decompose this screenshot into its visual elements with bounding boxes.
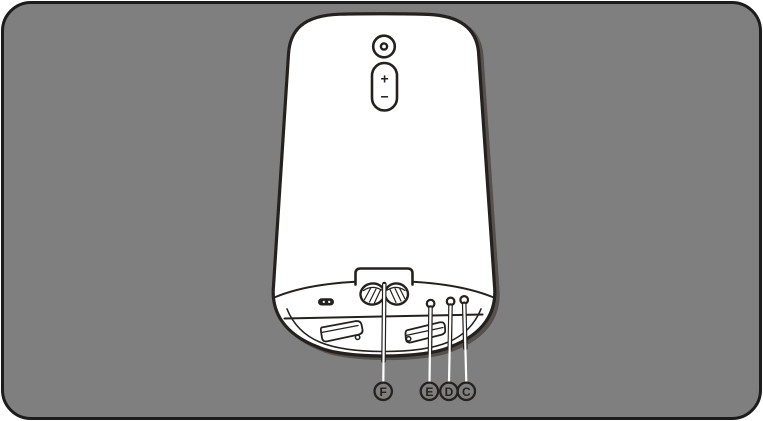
callout-label-e: E [421,383,438,400]
callout-letter-c: C [462,385,471,399]
callout-letter-f: F [380,385,387,399]
power-button-icon [373,36,395,58]
callout-label-c: C [458,383,475,400]
device-illustration: + − F E D C [0,0,763,421]
callout-letter-e: E [425,385,433,399]
volume-rocker: + − [372,63,397,111]
manual-figure: + − F E D C [0,0,763,421]
leader-f [383,284,384,382]
callout-letter-d: D [445,385,454,399]
volume-down-glyph: − [381,89,389,105]
small-slot-port [318,298,334,305]
callout-label-d: D [440,383,457,400]
leader-d [449,306,451,383]
volume-up-glyph: + [381,71,389,87]
leader-e [430,308,431,383]
callout-label-f: F [375,383,392,400]
